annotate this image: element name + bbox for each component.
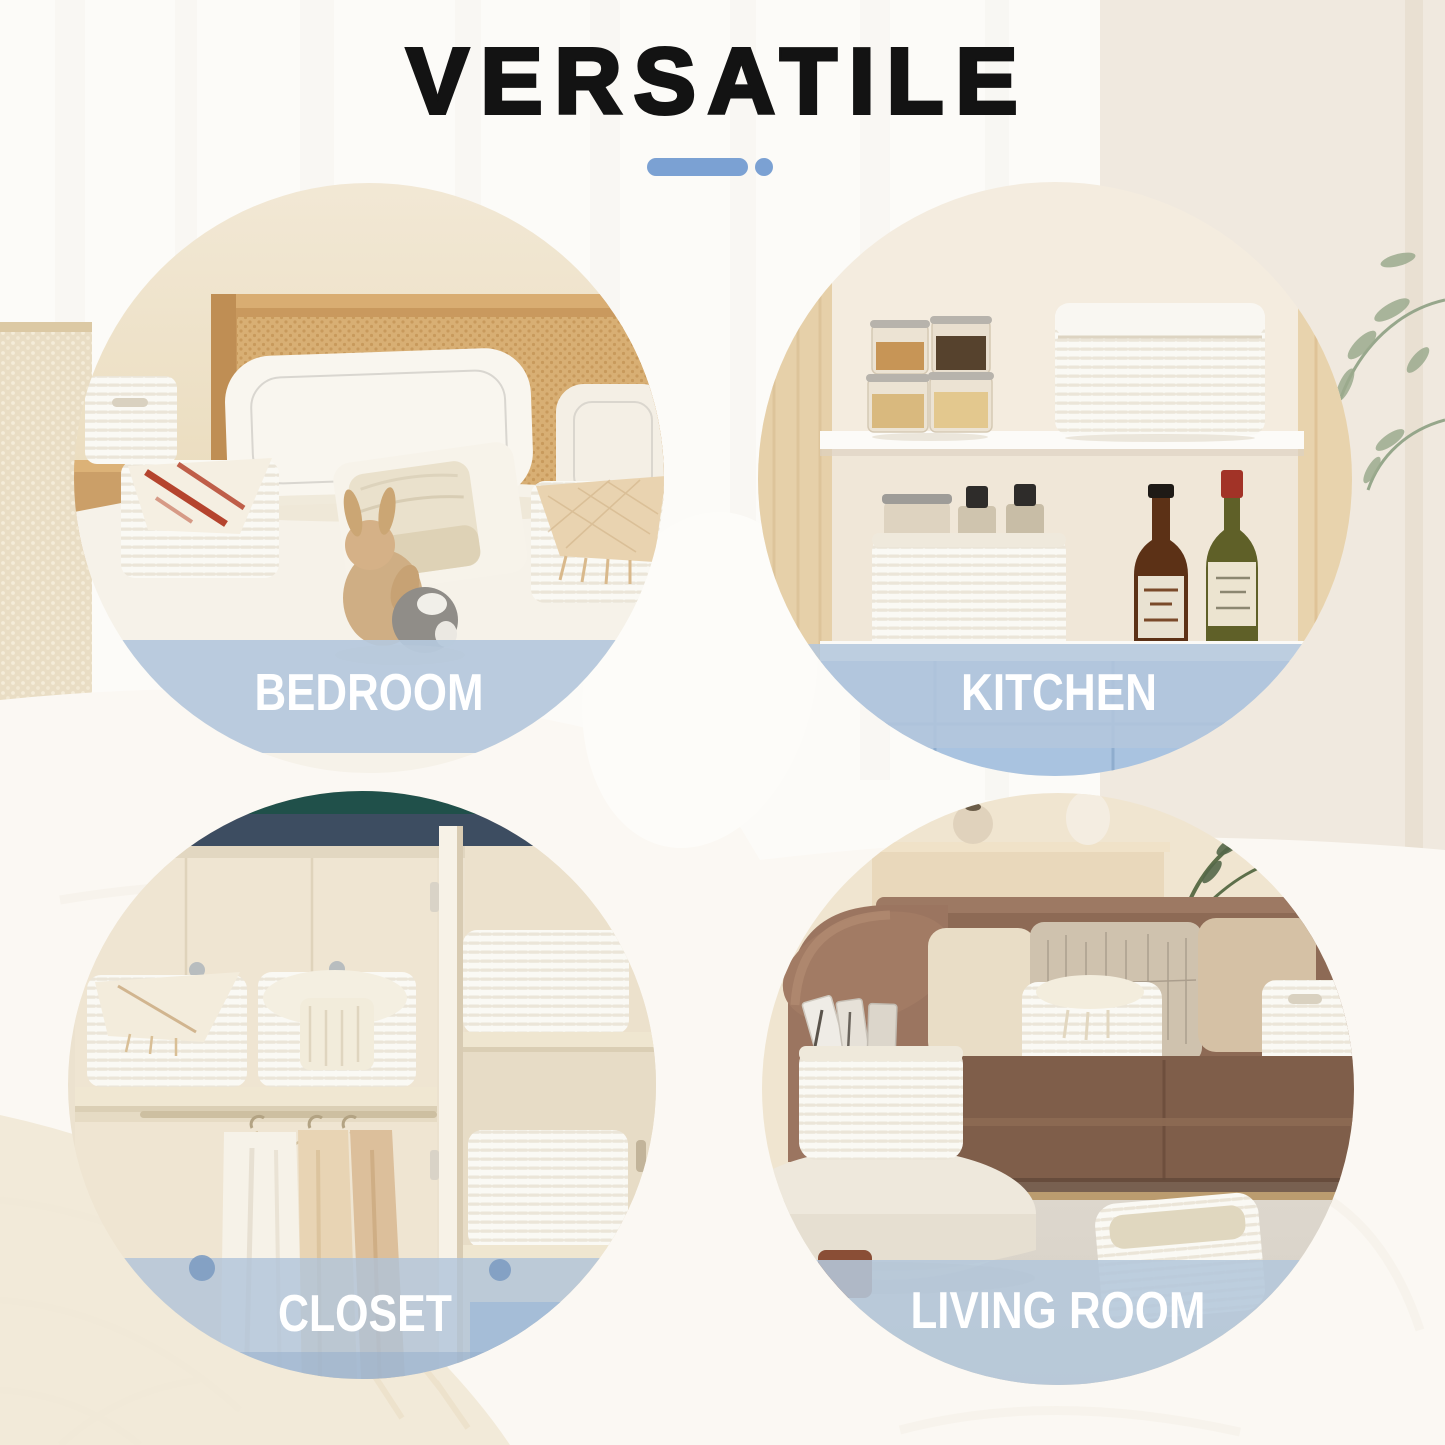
svg-text:BEDROOM: BEDROOM	[255, 664, 484, 722]
svg-text:CLOSET: CLOSET	[278, 1285, 452, 1343]
svg-text:KITCHEN: KITCHEN	[961, 664, 1157, 722]
svg-text:VERSATILE: VERSATILE	[407, 29, 1030, 133]
svg-text:LIVING ROOM: LIVING ROOM	[911, 1282, 1206, 1340]
